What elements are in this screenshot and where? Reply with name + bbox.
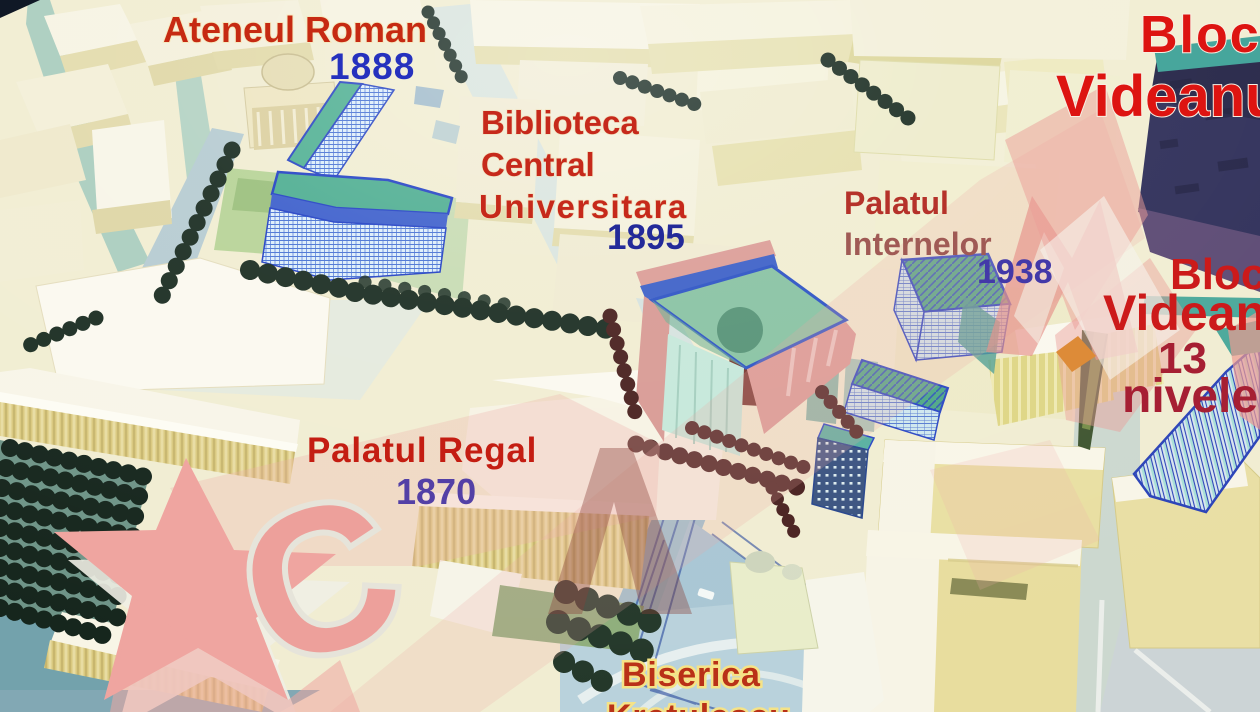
- svg-text:nivele: nivele: [1122, 370, 1258, 423]
- svg-text:Bloc: Bloc: [1140, 6, 1260, 64]
- svg-text:1888: 1888: [329, 46, 415, 87]
- svg-text:Videanu: Videanu: [1056, 64, 1260, 129]
- svg-text:Palatul Regal: Palatul Regal: [307, 431, 537, 470]
- svg-text:Biserica: Biserica: [622, 656, 761, 694]
- svg-text:Kretulescu: Kretulescu: [607, 698, 791, 712]
- svg-text:Palatul: Palatul: [844, 185, 949, 221]
- svg-text:Ateneul Roman: Ateneul Roman: [163, 9, 427, 50]
- svg-text:1870: 1870: [396, 471, 476, 512]
- svg-text:Internelor: Internelor: [844, 226, 992, 262]
- svg-text:1895: 1895: [607, 218, 685, 257]
- svg-text:Biblioteca: Biblioteca: [481, 104, 639, 141]
- svg-text:1938: 1938: [977, 253, 1053, 291]
- svg-text:Videan: Videan: [1103, 285, 1260, 341]
- svg-text:Central: Central: [481, 146, 595, 183]
